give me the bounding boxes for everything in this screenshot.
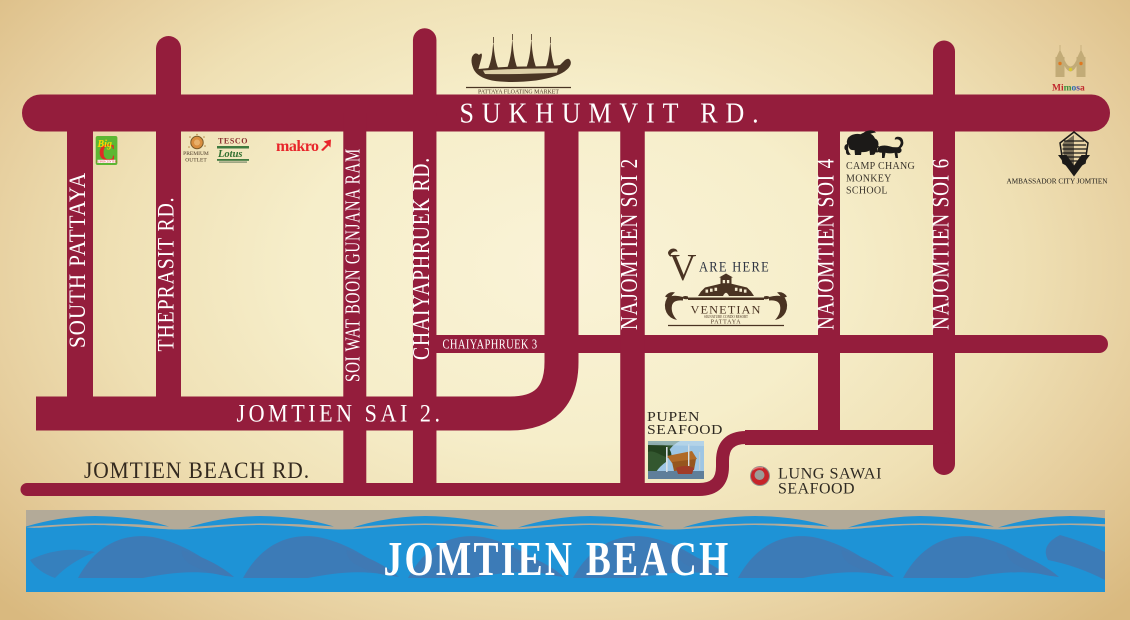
svg-text:NAJOMTIEN SOI 4: NAJOMTIEN SOI 4 bbox=[814, 158, 840, 330]
svg-text:CAMP CHANG: CAMP CHANG bbox=[846, 161, 915, 172]
svg-text:SIGNATURE CONDO RESORT: SIGNATURE CONDO RESORT bbox=[704, 314, 748, 319]
svg-text:PREMIUM: PREMIUM bbox=[183, 151, 209, 157]
svg-text:SUPERCENTER: SUPERCENTER bbox=[96, 160, 117, 164]
svg-text:SEAFOOD: SEAFOOD bbox=[647, 422, 723, 437]
svg-text:MONKEY: MONKEY bbox=[846, 174, 892, 185]
svg-text:JOMTIEN BEACH: JOMTIEN BEACH bbox=[384, 531, 731, 586]
svg-text:JOMTIEN BEACH RD.: JOMTIEN BEACH RD. bbox=[84, 458, 310, 484]
svg-text:PATTAYA FLOATING MARKET: PATTAYA FLOATING MARKET bbox=[478, 89, 559, 96]
svg-text:NAJOMTIEN SOI 6: NAJOMTIEN SOI 6 bbox=[929, 158, 955, 330]
svg-text:SOUTH PATTAYA: SOUTH PATTAYA bbox=[65, 172, 90, 348]
svg-text:SEAFOOD: SEAFOOD bbox=[778, 481, 855, 498]
svg-text:SUKHUMVIT RD.: SUKHUMVIT RD. bbox=[460, 99, 767, 130]
svg-text:THEPRASIT RD.: THEPRASIT RD. bbox=[154, 197, 179, 352]
svg-text:ARE HERE: ARE HERE bbox=[699, 260, 770, 276]
svg-text:makro: makro bbox=[276, 138, 319, 155]
svg-text:Big: Big bbox=[97, 139, 112, 150]
svg-text:JOMTIEN SAI 2.: JOMTIEN SAI 2. bbox=[237, 401, 444, 428]
svg-text:PATTAYA: PATTAYA bbox=[711, 320, 742, 326]
svg-text:Lotus: Lotus bbox=[217, 149, 243, 160]
svg-text:OUTLET: OUTLET bbox=[185, 158, 207, 164]
svg-text:CHAIYAPHRUEK RD.: CHAIYAPHRUEK RD. bbox=[409, 157, 435, 360]
svg-text:TESCO: TESCO bbox=[218, 137, 248, 146]
svg-text:V: V bbox=[669, 247, 697, 289]
svg-text:SOI WAT BOON GUNJANA RAM: SOI WAT BOON GUNJANA RAM bbox=[340, 148, 364, 382]
svg-text:SCHOOL: SCHOOL bbox=[846, 186, 888, 197]
svg-text:CHAIYAPHRUEK 3: CHAIYAPHRUEK 3 bbox=[443, 337, 538, 352]
svg-text:NAJOMTIEN SOI 2: NAJOMTIEN SOI 2 bbox=[617, 158, 643, 330]
svg-text:AMBASSADOR CITY JOMTIEN: AMBASSADOR CITY JOMTIEN bbox=[1007, 177, 1108, 186]
svg-text:Mimosa: Mimosa bbox=[1052, 84, 1085, 94]
